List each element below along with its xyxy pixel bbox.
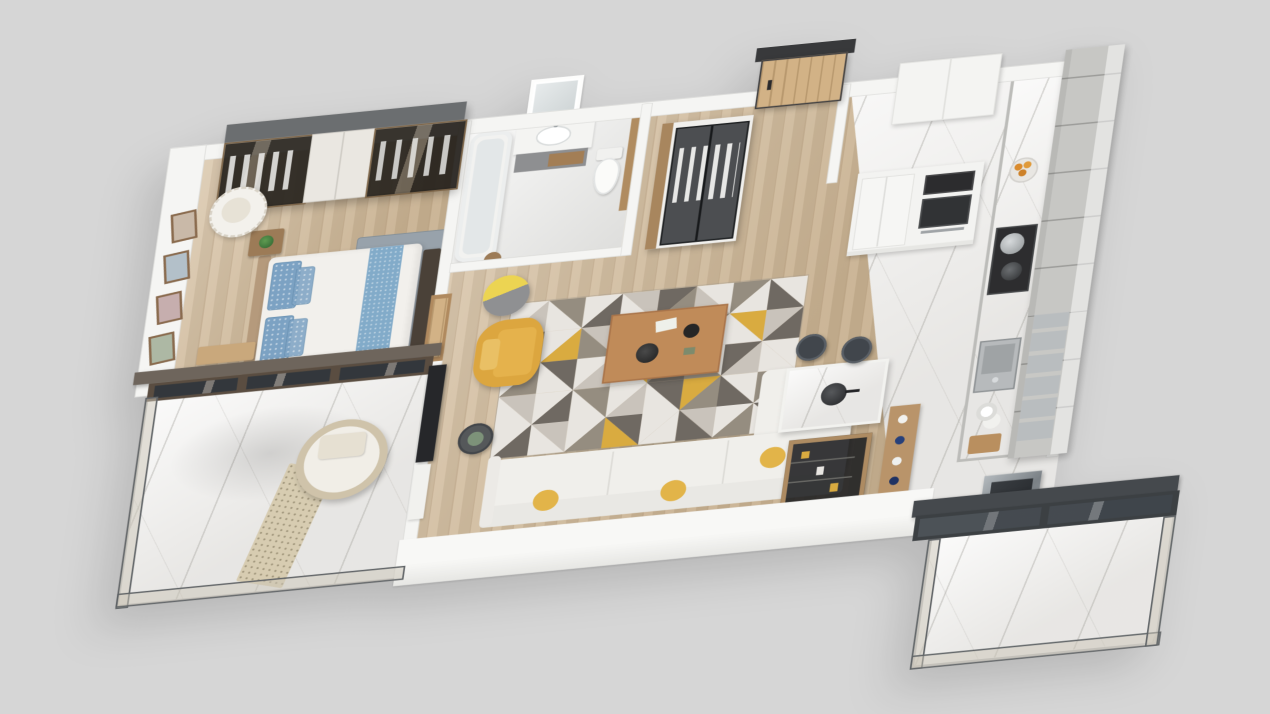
nightstand-plant bbox=[258, 235, 274, 249]
picture-frame bbox=[171, 209, 198, 243]
cabinet-seam bbox=[942, 59, 952, 119]
bottle-white bbox=[897, 415, 908, 424]
wardrobe-glass-doors-right bbox=[365, 119, 468, 198]
bottle-white bbox=[891, 457, 902, 466]
door-seam bbox=[334, 132, 345, 199]
picture-frame bbox=[148, 331, 175, 365]
wood-coffee-table bbox=[602, 304, 729, 384]
orange-fruit bbox=[1018, 169, 1027, 177]
closet-glass-front bbox=[659, 121, 749, 246]
kitchen-tall-units bbox=[846, 161, 984, 256]
bottle-navy bbox=[889, 476, 900, 485]
oven-handle bbox=[921, 227, 965, 234]
picture-frame bbox=[156, 291, 183, 325]
floor-plan-scene bbox=[0, 0, 1270, 714]
chair-cushion bbox=[220, 196, 252, 224]
kitchen-island bbox=[778, 358, 890, 432]
microwave bbox=[923, 171, 975, 195]
white-upper-cabinets bbox=[891, 53, 1002, 125]
small-plate bbox=[682, 323, 700, 339]
toilet-bowl bbox=[591, 157, 622, 196]
side-table-decor bbox=[467, 431, 485, 447]
serving-bowl bbox=[635, 342, 660, 364]
picture-frame bbox=[163, 250, 190, 284]
lounger-pillow bbox=[317, 431, 367, 459]
papers bbox=[656, 317, 677, 332]
sink-faucet bbox=[992, 377, 999, 383]
kitchen-sink bbox=[973, 337, 1022, 393]
entry-door-leaf bbox=[755, 52, 848, 109]
cabinet-shelf bbox=[788, 476, 852, 484]
bottle-navy bbox=[894, 436, 905, 445]
shelf-decor-white bbox=[816, 466, 824, 475]
living-plant bbox=[465, 231, 521, 279]
oven bbox=[918, 194, 972, 228]
fridge bbox=[852, 174, 915, 251]
pot-dark bbox=[1000, 261, 1023, 281]
sink-basin bbox=[981, 343, 1015, 374]
hall-closet bbox=[645, 115, 754, 250]
decor-box bbox=[683, 347, 695, 355]
door-handle bbox=[767, 80, 772, 90]
shelf-decor-yellow bbox=[829, 483, 838, 492]
shelf-decor-yellow bbox=[801, 451, 810, 459]
cutting-board bbox=[967, 433, 1002, 454]
orange-fruit bbox=[1023, 161, 1032, 169]
pot bbox=[999, 232, 1026, 255]
apartment-plan bbox=[130, 60, 1115, 605]
nightstand bbox=[248, 228, 285, 256]
hanging-clothes bbox=[375, 134, 454, 180]
